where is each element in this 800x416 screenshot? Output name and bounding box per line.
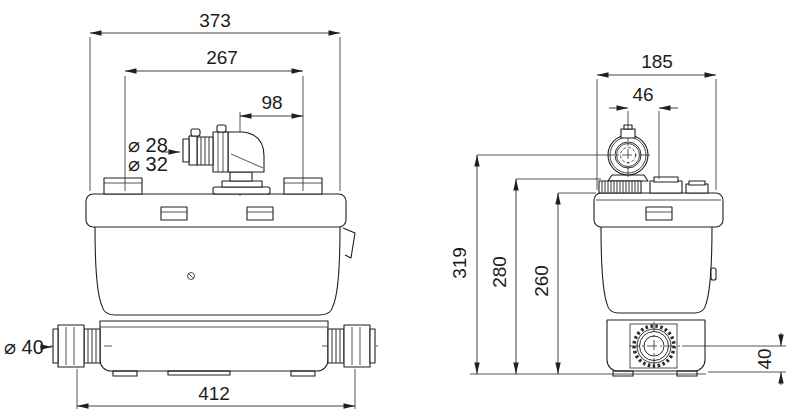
foot bbox=[613, 371, 633, 376]
dim-height-collar-label: 280 bbox=[489, 256, 510, 288]
front-base bbox=[100, 321, 328, 376]
side-tab bbox=[711, 268, 716, 280]
pipe-rib-section bbox=[197, 137, 213, 165]
side-base bbox=[607, 320, 705, 376]
side-lid-boss-center bbox=[650, 177, 682, 193]
dim-outlet-center-offset-label: 46 bbox=[632, 84, 653, 105]
foot bbox=[291, 371, 315, 376]
dim-base-width-label: 412 bbox=[198, 383, 230, 404]
dim-overall-width-label: 373 bbox=[199, 10, 231, 31]
side-lid-boss-right bbox=[686, 181, 708, 193]
front-tank bbox=[95, 227, 355, 315]
dim-height-lid-label: 260 bbox=[531, 265, 552, 297]
dim-inner-width-label: 267 bbox=[206, 47, 238, 68]
outlet-diameter-callout: ⌀ 28 ⌀ 32 bbox=[128, 134, 180, 175]
discharge-elbow bbox=[183, 112, 270, 196]
dim-side-width-label: 185 bbox=[641, 51, 673, 72]
ribbed-locking-collar bbox=[599, 181, 641, 193]
foot bbox=[113, 371, 137, 376]
lid-boss-left bbox=[104, 178, 142, 194]
dim-height-lid: 260 bbox=[531, 193, 596, 374]
outlet-top-clip bbox=[621, 129, 635, 138]
pump-dimension-drawing: 373 267 98 ⌀ 28 ⌀ 32 ⌀ 40 bbox=[0, 0, 800, 416]
side-view bbox=[594, 125, 723, 376]
dim-outlet-offset: 98 bbox=[240, 92, 303, 116]
inlet-diameter-callout: ⌀ 40 bbox=[4, 336, 52, 358]
technical-drawing-page: 373 267 98 ⌀ 28 ⌀ 32 ⌀ 40 bbox=[0, 0, 800, 416]
side-lid bbox=[594, 193, 723, 227]
dim-inlet-center-height-label: 40 bbox=[754, 348, 775, 369]
dim-outlet-offset-label: 98 bbox=[261, 92, 282, 113]
inlet-dia-label: ⌀ 40 bbox=[4, 336, 44, 358]
dim-height-outlet-center-label: 319 bbox=[449, 247, 470, 279]
front-view bbox=[50, 112, 378, 376]
inlet-connector-right bbox=[322, 325, 378, 367]
front-lid bbox=[86, 194, 346, 227]
foot bbox=[168, 371, 230, 375]
foot bbox=[677, 371, 697, 376]
side-clip-tab bbox=[343, 228, 355, 258]
screw-detail bbox=[188, 273, 195, 280]
side-tank bbox=[601, 227, 716, 313]
discharge-outlet-end-view bbox=[599, 125, 652, 193]
hose-clip-left bbox=[191, 129, 200, 136]
outlet-dia-large-label: ⌀ 32 bbox=[128, 153, 168, 175]
dim-height-outlet-center: 319 bbox=[449, 155, 604, 374]
hose-clip-right bbox=[217, 125, 226, 132]
